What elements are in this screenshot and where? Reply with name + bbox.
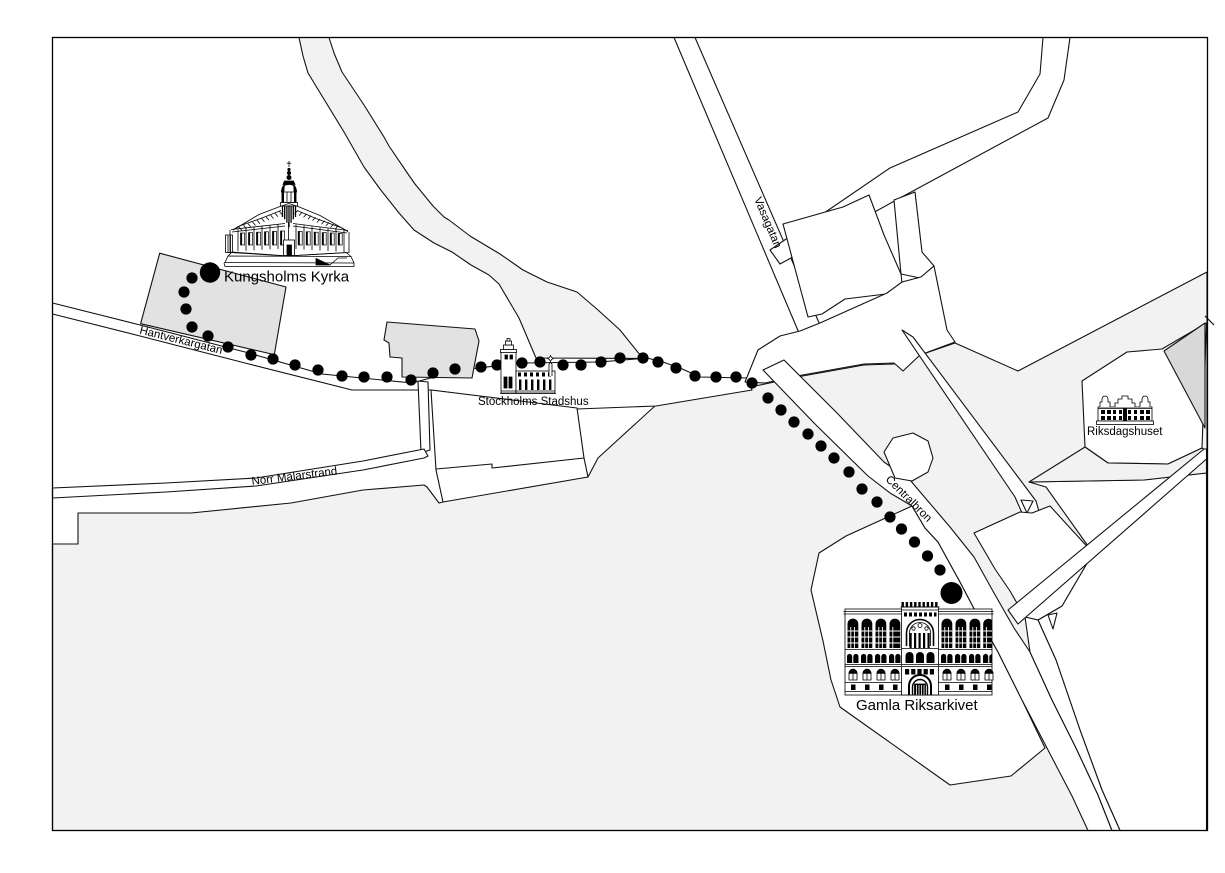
svg-text:Kungsholms Kyrka: Kungsholms Kyrka <box>224 269 350 286</box>
svg-text:Riksdagshuset: Riksdagshuset <box>1087 426 1163 438</box>
svg-text:Stockholms Stadshus: Stockholms Stadshus <box>478 396 589 408</box>
svg-text:Gamla Riksarkivet: Gamla Riksarkivet <box>856 697 979 714</box>
